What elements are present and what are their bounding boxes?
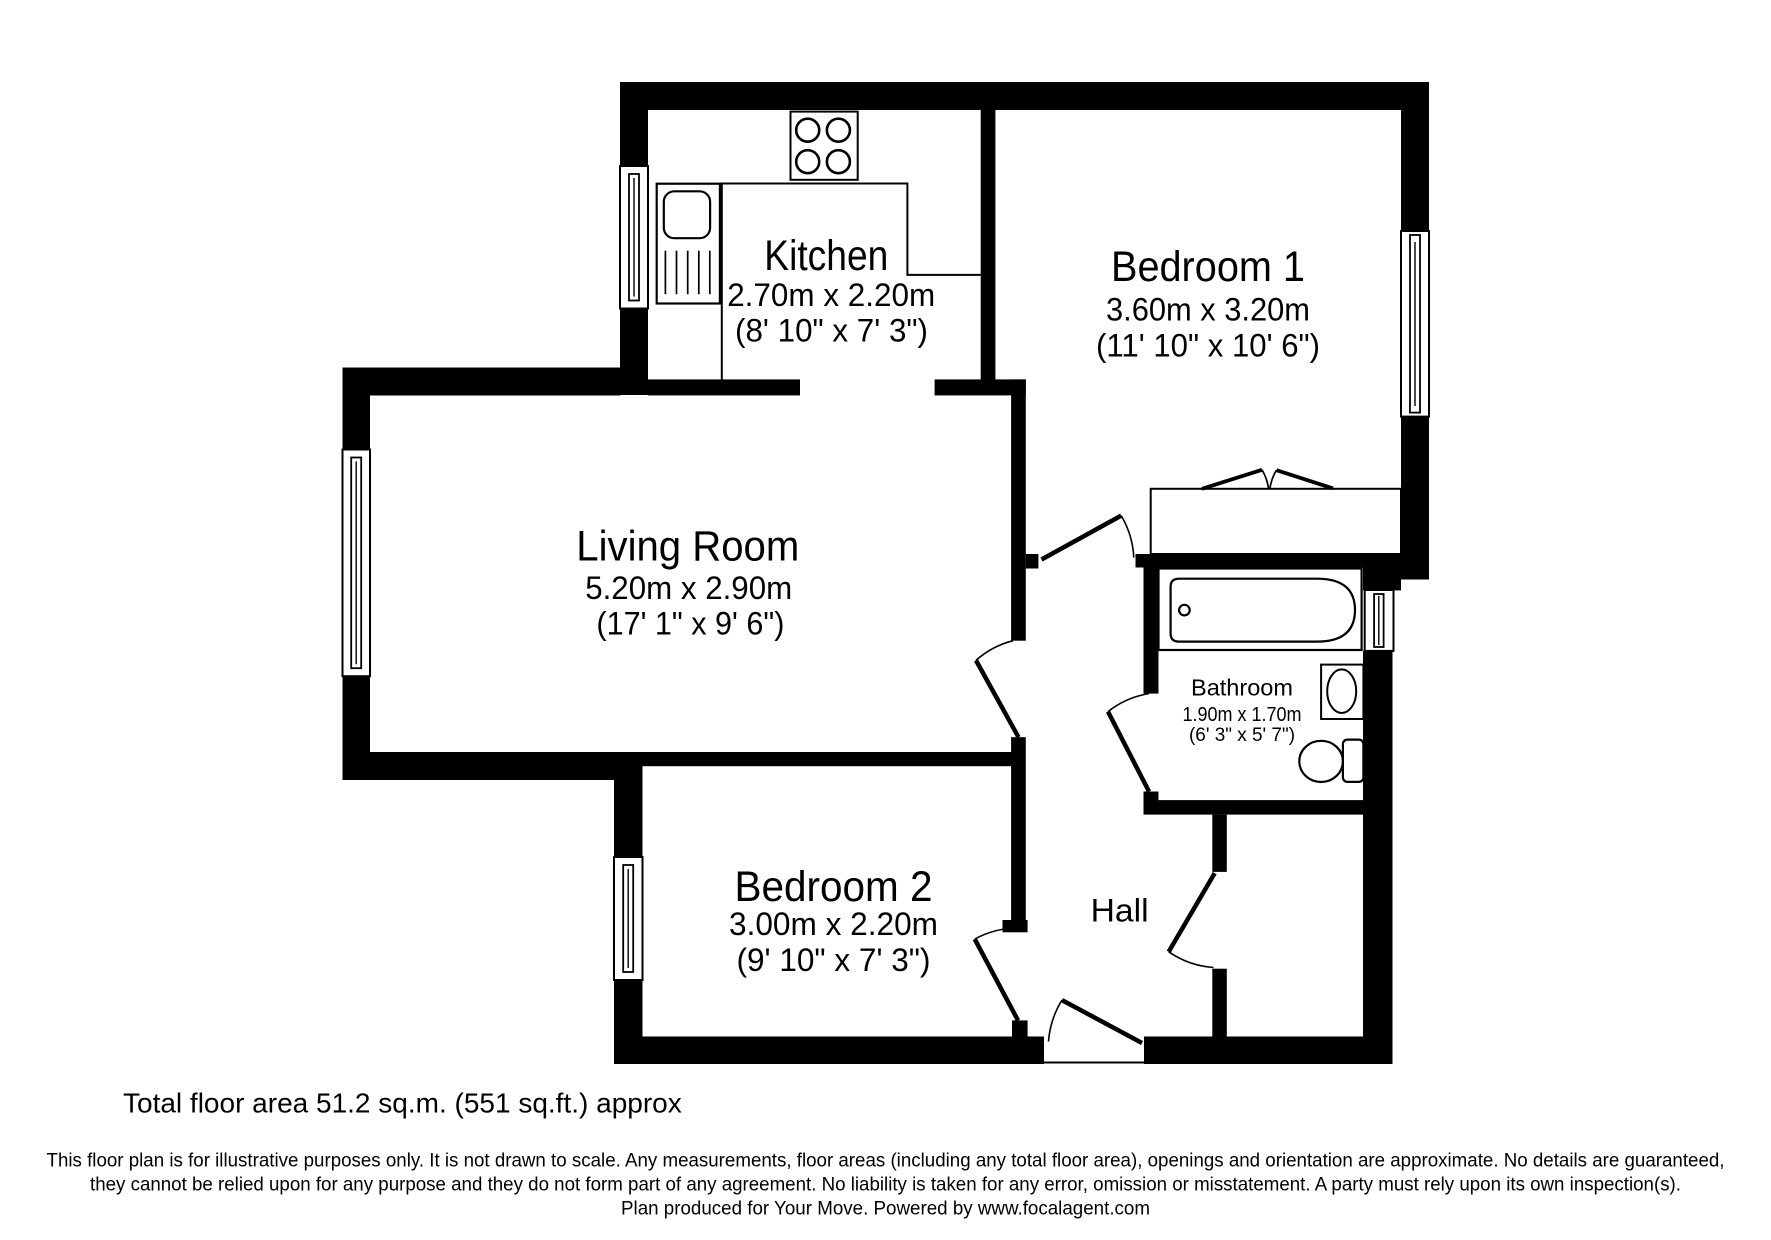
svg-text:5.20m x 2.90m: 5.20m x 2.90m bbox=[585, 570, 792, 606]
svg-text:Living Room: Living Room bbox=[576, 524, 799, 571]
svg-text:Bedroom 2: Bedroom 2 bbox=[735, 864, 933, 911]
svg-text:Bedroom 1: Bedroom 1 bbox=[1111, 244, 1305, 291]
svg-text:3.00m x 2.20m: 3.00m x 2.20m bbox=[729, 906, 938, 942]
svg-text:Plan produced for Your Move. P: Plan produced for Your Move. Powered by … bbox=[621, 1198, 1150, 1220]
svg-text:(6' 3" x 5' 7"): (6' 3" x 5' 7") bbox=[1189, 725, 1295, 746]
svg-text:This floor plan is for illustr: This floor plan is for illustrative purp… bbox=[47, 1150, 1725, 1172]
svg-text:2.70m x 2.20m: 2.70m x 2.20m bbox=[727, 277, 935, 313]
svg-text:1.90m x 1.70m: 1.90m x 1.70m bbox=[1183, 704, 1302, 726]
svg-text:(17' 1" x 9' 6"): (17' 1" x 9' 6") bbox=[596, 606, 784, 642]
svg-text:(11' 10" x 10' 6"): (11' 10" x 10' 6") bbox=[1096, 328, 1320, 364]
svg-text:Bathroom: Bathroom bbox=[1191, 675, 1293, 701]
svg-text:Kitchen: Kitchen bbox=[764, 233, 888, 280]
svg-text:they cannot be relied upon for: they cannot be relied upon for any purpo… bbox=[90, 1174, 1681, 1196]
svg-text:(9' 10" x 7' 3"): (9' 10" x 7' 3") bbox=[737, 942, 931, 978]
svg-text:Total floor area 51.2 sq.m. (5: Total floor area 51.2 sq.m. (551 sq.ft.)… bbox=[123, 1088, 682, 1119]
svg-text:Hall: Hall bbox=[1091, 892, 1149, 928]
svg-text:(8' 10" x 7' 3"): (8' 10" x 7' 3") bbox=[735, 313, 928, 349]
svg-text:3.60m x 3.20m: 3.60m x 3.20m bbox=[1106, 292, 1310, 328]
